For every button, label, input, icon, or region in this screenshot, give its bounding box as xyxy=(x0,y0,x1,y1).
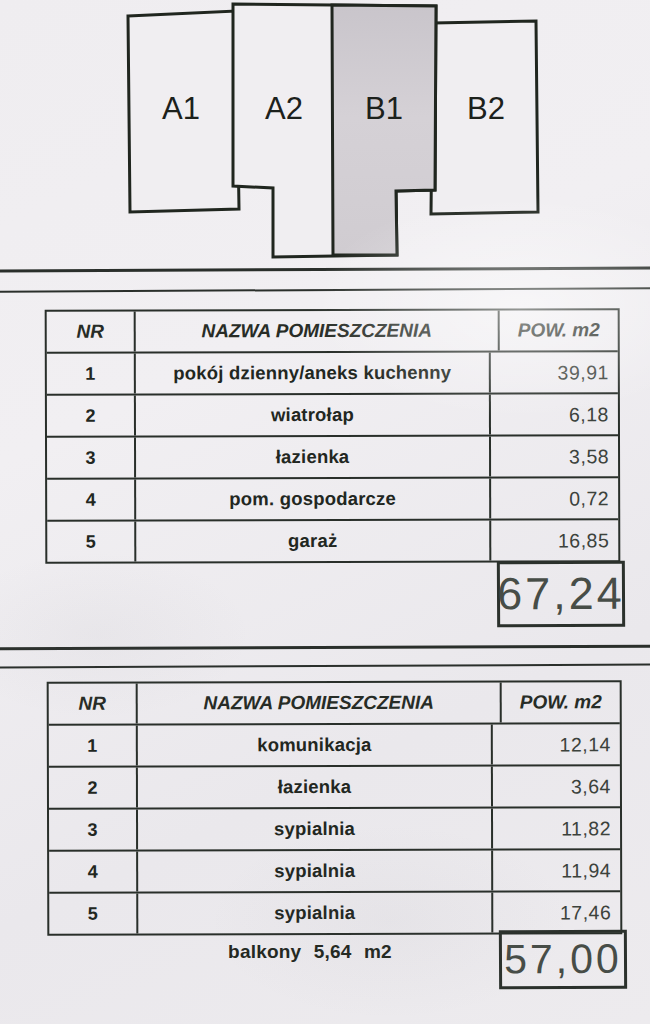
table-header-row: NR NAZWA POMIESZCZENIA POW. m2 xyxy=(47,310,618,353)
total-area-value: 57,00 xyxy=(504,936,622,984)
cell-room-name: sypialnia xyxy=(138,851,493,892)
col-header-name: NAZWA POMIESZCZENIA xyxy=(136,311,500,352)
building-layout-diagram: A1 A2 B1 B2 xyxy=(0,0,650,264)
cell-room-name: łazienka xyxy=(138,767,493,808)
cell-nr: 1 xyxy=(49,726,138,766)
separator-line xyxy=(0,267,650,273)
cell-nr: 5 xyxy=(47,522,136,562)
cell-area: 16,85 xyxy=(491,520,618,560)
table-row: 4 sypialnia 11,94 xyxy=(49,850,620,893)
cell-nr: 2 xyxy=(49,768,138,808)
cell-nr: 3 xyxy=(47,438,136,478)
unit-b2-label: B2 xyxy=(467,91,505,126)
unit-a1-label: A1 xyxy=(162,91,200,126)
cell-area: 39,91 xyxy=(491,352,618,392)
cell-area: 0,72 xyxy=(491,478,618,518)
table-row: 5 garaż 16,85 xyxy=(47,520,618,561)
table-row: 4 pom. gospodarcze 0,72 xyxy=(47,478,618,521)
cell-room-name: sypialnia xyxy=(138,893,493,934)
unit-a2-label: A2 xyxy=(265,91,303,126)
area-table-ground-floor: NR NAZWA POMIESZCZENIA POW. m2 1 pokój d… xyxy=(45,308,621,564)
cell-area: 11,94 xyxy=(493,850,620,890)
cell-room-name: pokój dzienny/aneks kuchenny xyxy=(136,353,491,394)
cell-room-name: komunikacja xyxy=(138,725,493,766)
table-row: 3 sypialnia 11,82 xyxy=(49,808,620,851)
separator-line xyxy=(0,664,650,669)
table-row: 2 wiatrołap 6,18 xyxy=(47,394,618,437)
col-header-name: NAZWA POMIESZCZENIA xyxy=(138,683,502,724)
col-header-area: POW. m2 xyxy=(502,682,620,722)
cell-room-name: pom. gospodarcze xyxy=(136,479,491,520)
cell-area: 11,82 xyxy=(493,808,620,848)
col-header-nr: NR xyxy=(47,312,136,352)
cell-area: 17,46 xyxy=(493,892,620,932)
cell-room-name: wiatrołap xyxy=(136,395,491,436)
col-header-nr: NR xyxy=(49,684,138,724)
cell-area: 12,14 xyxy=(493,724,620,764)
cell-area: 3,58 xyxy=(491,436,618,476)
cell-nr: 4 xyxy=(49,852,138,892)
table-row: 3 łazienka 3,58 xyxy=(47,436,618,479)
separator-line xyxy=(0,645,650,650)
total-area-box: 67,24 xyxy=(497,561,625,628)
table-row: 2 łazienka 3,64 xyxy=(49,766,620,809)
total-area-value: 67,24 xyxy=(497,568,625,621)
cell-area: 6,18 xyxy=(491,394,618,434)
cell-room-name: łazienka xyxy=(136,437,491,478)
cell-area: 3,64 xyxy=(493,766,620,806)
balcony-note: balkony 5,64 m2 xyxy=(120,941,500,963)
col-header-area: POW. m2 xyxy=(500,310,618,350)
table-header-row: NR NAZWA POMIESZCZENIA POW. m2 xyxy=(49,682,620,725)
separator-line xyxy=(0,287,650,292)
unit-b1-shape xyxy=(332,5,436,255)
cell-nr: 5 xyxy=(49,894,138,934)
scanned-document-page: A1 A2 B1 B2 NR NAZWA POMIESZCZENIA POW. … xyxy=(0,0,650,1024)
cell-nr: 1 xyxy=(47,354,136,394)
table-row: 5 sypialnia 17,46 xyxy=(49,892,620,933)
cell-nr: 4 xyxy=(47,480,136,520)
cell-nr: 2 xyxy=(47,396,136,436)
cell-room-name: garaż xyxy=(136,521,491,562)
area-table-first-floor: NR NAZWA POMIESZCZENIA POW. m2 1 komunik… xyxy=(47,680,623,936)
table-row: 1 komunikacja 12,14 xyxy=(49,724,620,767)
cell-room-name: sypialnia xyxy=(138,809,493,850)
cell-nr: 3 xyxy=(49,810,138,850)
total-area-box: 57,00 xyxy=(499,930,627,990)
table-row: 1 pokój dzienny/aneks kuchenny 39,91 xyxy=(47,352,618,395)
unit-b1-label: B1 xyxy=(365,91,403,126)
